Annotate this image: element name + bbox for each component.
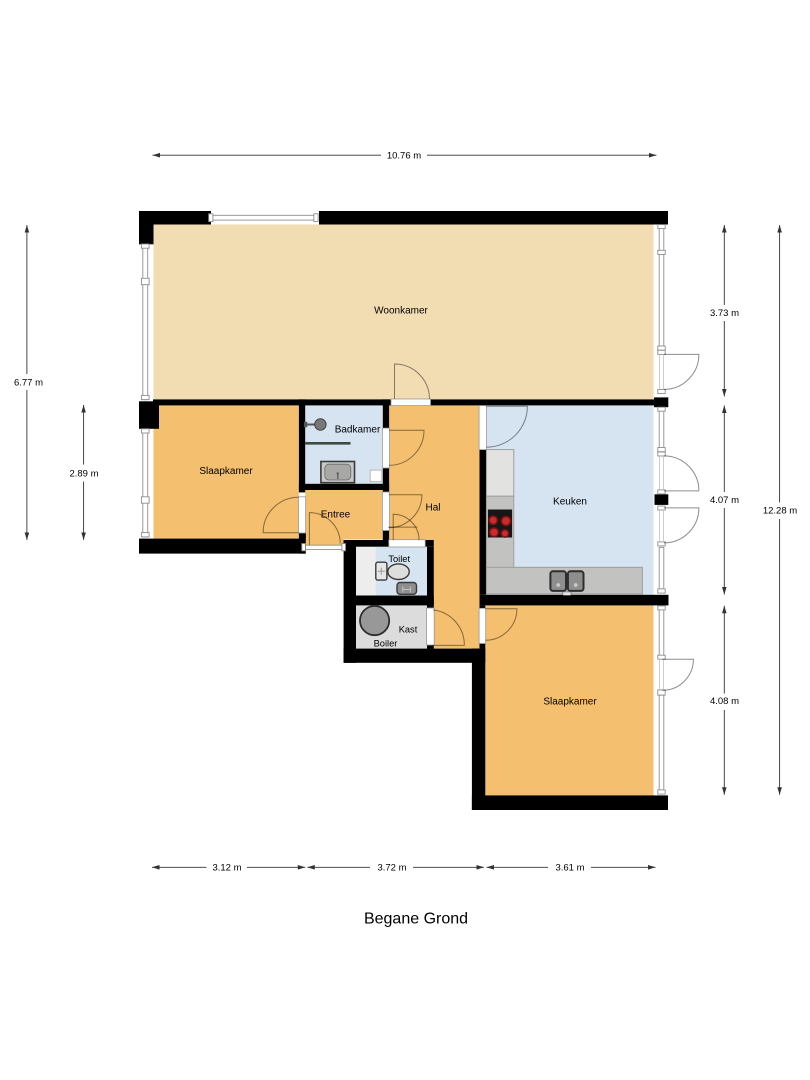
svg-text:Entree: Entree — [321, 509, 351, 520]
svg-text:Begane Grond: Begane Grond — [364, 911, 468, 928]
svg-text:Boiler: Boiler — [374, 638, 398, 648]
svg-text:4.07 m: 4.07 m — [710, 495, 739, 506]
svg-text:6.77 m: 6.77 m — [14, 377, 43, 388]
svg-text:Badkamer: Badkamer — [335, 425, 381, 436]
svg-text:3.72 m: 3.72 m — [377, 863, 406, 874]
svg-text:4.08 m: 4.08 m — [710, 696, 739, 707]
svg-text:Kast: Kast — [399, 624, 418, 634]
svg-text:3.73 m: 3.73 m — [710, 308, 739, 319]
svg-text:Woonkamer: Woonkamer — [374, 306, 428, 317]
svg-text:Slaapkamer: Slaapkamer — [199, 466, 253, 477]
svg-text:10.76 m: 10.76 m — [387, 151, 421, 162]
svg-text:Slaapkamer: Slaapkamer — [543, 697, 597, 708]
svg-text:Keuken: Keuken — [553, 497, 587, 508]
svg-text:Toilet: Toilet — [388, 554, 410, 564]
svg-text:Hal: Hal — [425, 503, 440, 514]
svg-text:12.28 m: 12.28 m — [763, 505, 797, 516]
svg-text:2.89 m: 2.89 m — [69, 468, 98, 479]
svg-text:3.61 m: 3.61 m — [555, 863, 584, 874]
svg-text:3.12 m: 3.12 m — [212, 863, 241, 874]
